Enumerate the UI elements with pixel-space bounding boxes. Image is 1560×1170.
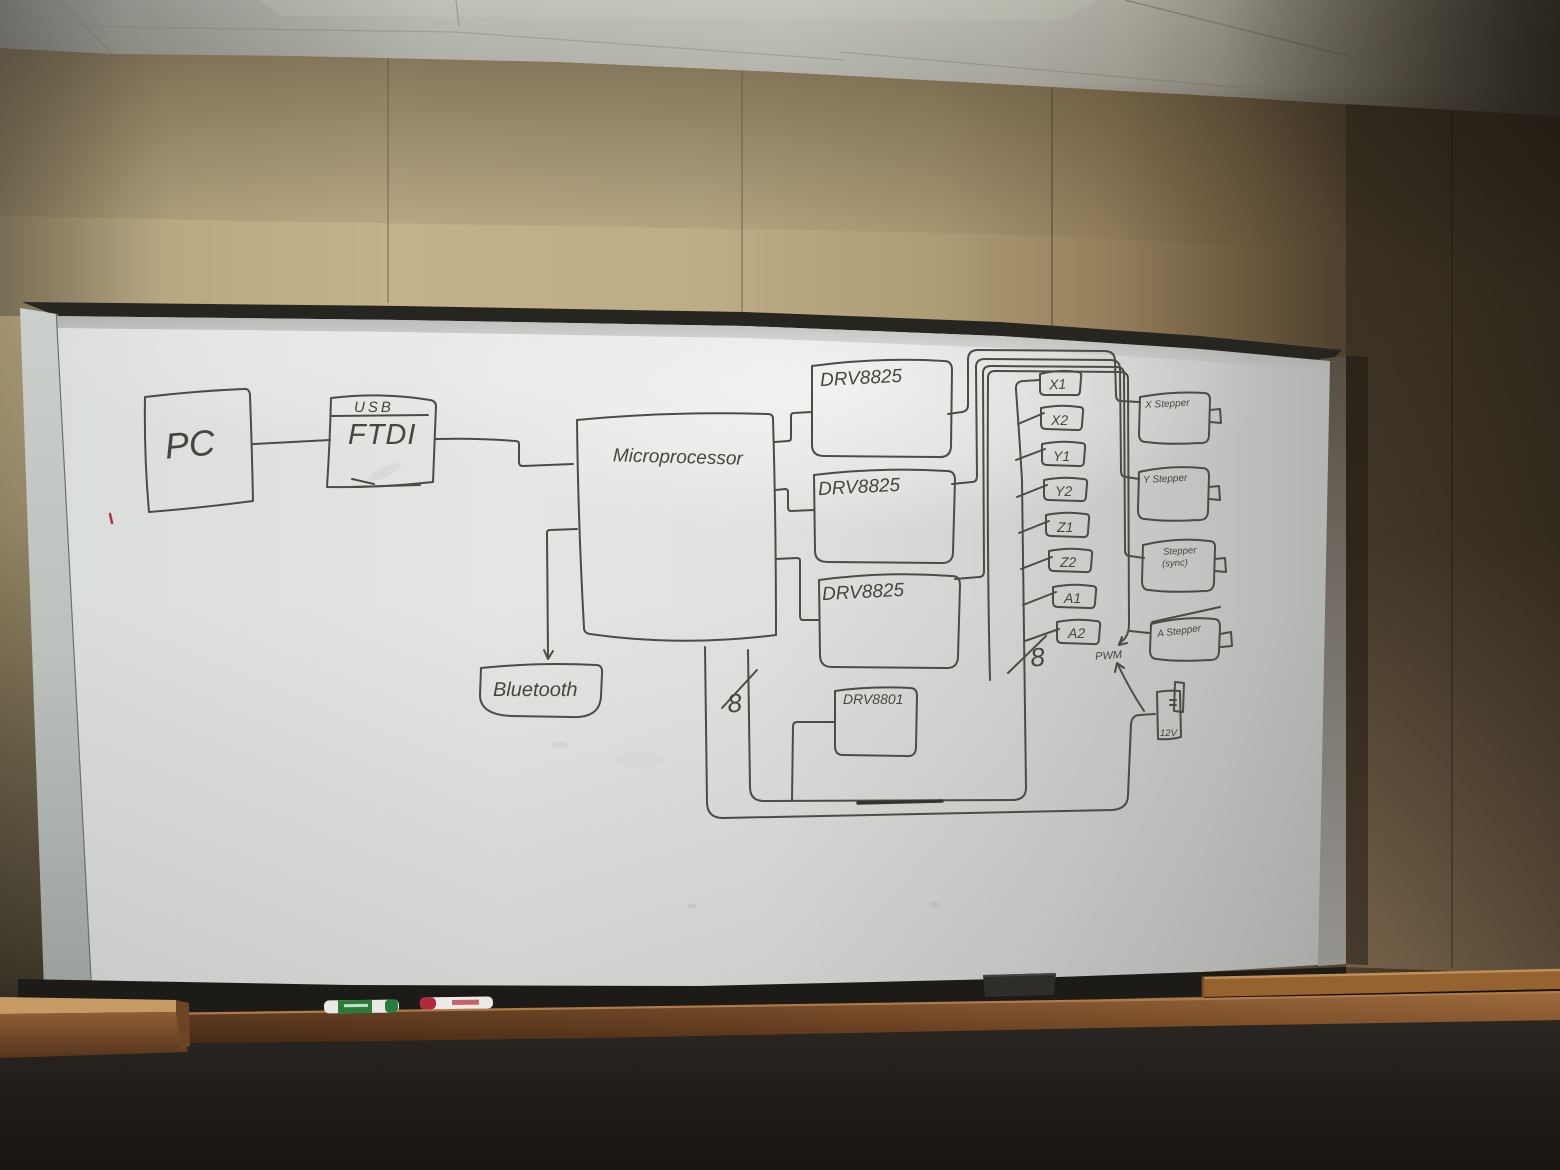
svg-text:Y Stepper: Y Stepper [1143, 473, 1188, 486]
svg-text:A1: A1 [1063, 590, 1081, 606]
svg-text:DRV8825: DRV8825 [818, 475, 901, 500]
svg-text:DRV8801: DRV8801 [843, 691, 903, 707]
svg-text:Y2: Y2 [1055, 483, 1072, 499]
svg-text:Microprocessor: Microprocessor [613, 445, 744, 469]
svg-text:USB: USB [354, 399, 394, 416]
svg-text:PC: PC [163, 421, 217, 466]
svg-text:Y1: Y1 [1053, 448, 1070, 464]
svg-text:Z2: Z2 [1059, 554, 1077, 570]
svg-text:Z1: Z1 [1056, 519, 1073, 535]
svg-text:X1: X1 [1048, 376, 1067, 393]
svg-text:DRV8825: DRV8825 [820, 366, 903, 391]
svg-text:(sync): (sync) [1162, 557, 1188, 569]
svg-text:12V: 12V [1160, 728, 1179, 739]
svg-text:PWM: PWM [1095, 649, 1123, 663]
svg-text:DRV8825: DRV8825 [822, 580, 905, 605]
svg-text:FTDI: FTDI [348, 419, 416, 451]
svg-text:Stepper: Stepper [1163, 545, 1198, 558]
svg-text:Bluetooth: Bluetooth [493, 679, 578, 701]
svg-text:A2: A2 [1067, 625, 1085, 641]
svg-text:X2: X2 [1050, 412, 1068, 428]
